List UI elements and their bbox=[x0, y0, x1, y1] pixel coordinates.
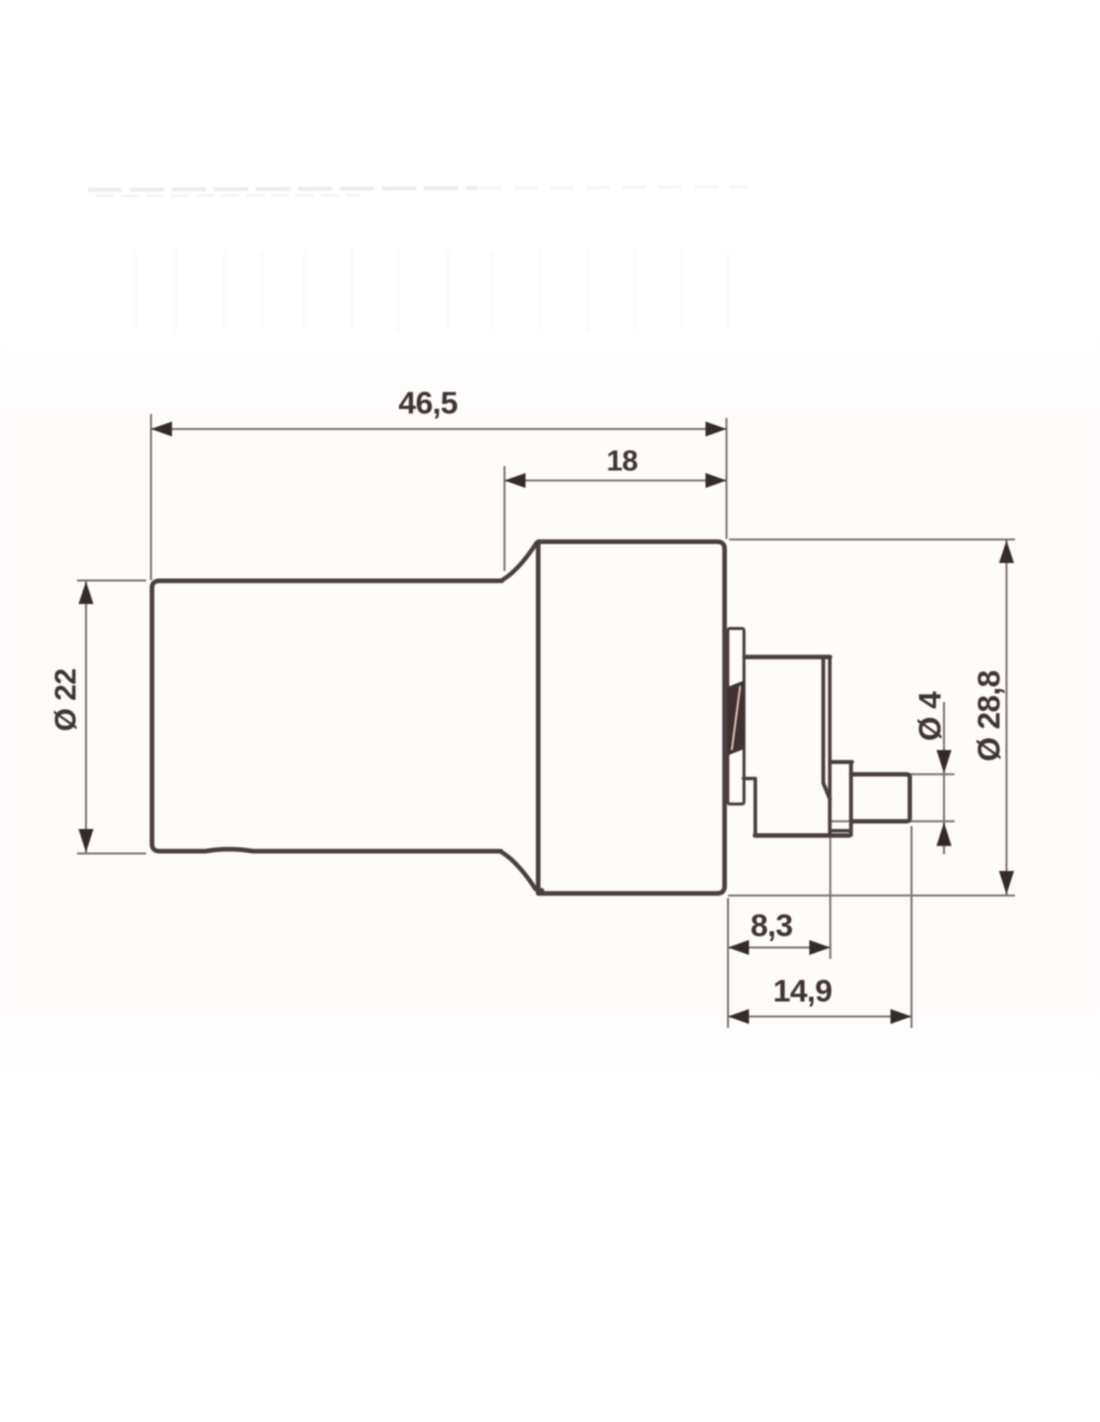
svg-text:Ø 4: Ø 4 bbox=[912, 691, 948, 741]
svg-text:Ø 22: Ø 22 bbox=[50, 669, 83, 732]
svg-text:18: 18 bbox=[606, 446, 638, 478]
svg-text:8,3: 8,3 bbox=[751, 907, 793, 943]
svg-text:14,9: 14,9 bbox=[773, 973, 832, 1009]
svg-text:Ø 28,8: Ø 28,8 bbox=[971, 670, 1007, 761]
svg-text:46,5: 46,5 bbox=[399, 385, 458, 421]
